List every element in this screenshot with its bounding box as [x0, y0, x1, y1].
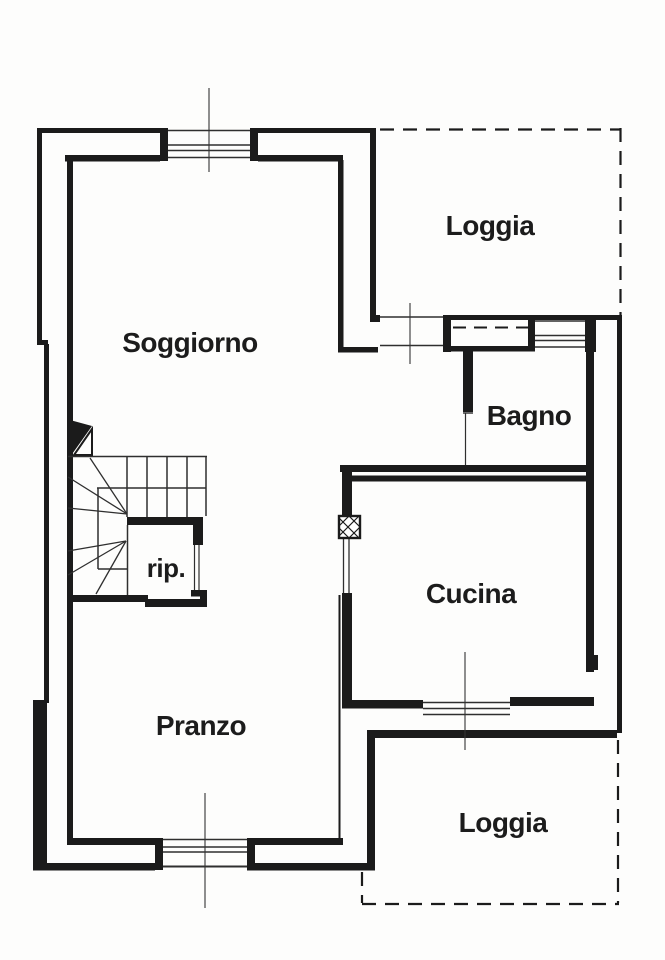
wall-jamb [443, 315, 451, 352]
wall-segment [65, 155, 160, 162]
wall-segment [193, 517, 203, 545]
room-label-bagno: Bagno [487, 400, 572, 431]
wall-segment [367, 730, 617, 738]
wall-segment [258, 128, 376, 133]
wall-segment [338, 160, 344, 350]
wall-segment [342, 468, 352, 518]
wall-segment [340, 465, 594, 472]
wall-segment [33, 863, 155, 871]
wall-step [370, 315, 380, 322]
room-label-loggia-bottom: Loggia [459, 807, 549, 838]
left-wall [33, 128, 73, 870]
room-label-pranzo: Pranzo [156, 710, 247, 741]
rip-room [67, 517, 207, 607]
bagno-partitions [340, 350, 598, 672]
wall-segment [145, 599, 207, 607]
wall-segment [367, 730, 375, 870]
wall-segment [370, 128, 376, 318]
wall-segment [67, 838, 155, 845]
window-jamb [155, 838, 163, 870]
room-label-soggiorno: Soggiorno [122, 327, 258, 358]
wall-segment [258, 155, 343, 162]
stair-treads [68, 456, 207, 595]
wall-segment [510, 697, 594, 706]
bagno-window [535, 321, 585, 347]
wall-step [586, 655, 598, 670]
pillar [339, 516, 360, 538]
window-jamb [585, 315, 596, 352]
wall-segment [67, 155, 73, 845]
window-jamb [528, 315, 535, 351]
wall-segment [342, 700, 423, 709]
staircase [68, 420, 207, 595]
wall-segment [255, 838, 343, 845]
wall-segment [37, 128, 42, 344]
wall-segment [342, 593, 352, 702]
wall-segment [37, 128, 160, 133]
wall-segment [586, 350, 594, 672]
wall-segment [67, 595, 148, 602]
wall-segment [463, 350, 473, 412]
wall-segment [338, 347, 378, 353]
window-jamb [160, 128, 168, 161]
wall-segment [348, 476, 587, 482]
wall-segment [127, 517, 203, 525]
floor-plan-page: Soggiorno Loggia Bagno Cucina rip. Pranz… [0, 0, 665, 960]
floor-plan-drawing: Soggiorno Loggia Bagno Cucina rip. Pranz… [0, 0, 665, 960]
east-wall-outer-face [617, 317, 622, 733]
wall-segment [247, 863, 375, 871]
cucina-window [423, 703, 510, 715]
soggiorno-east-wall [338, 128, 380, 353]
room-label-cucina: Cucina [426, 578, 517, 609]
axis-centerlines [205, 88, 465, 908]
north-band [380, 315, 622, 352]
room-label-loggia-top: Loggia [446, 210, 536, 241]
window-jamb [250, 128, 258, 161]
wall-segment [33, 700, 47, 870]
room-label-ripostiglio: rip. [147, 553, 185, 583]
wall-segment [44, 344, 49, 703]
